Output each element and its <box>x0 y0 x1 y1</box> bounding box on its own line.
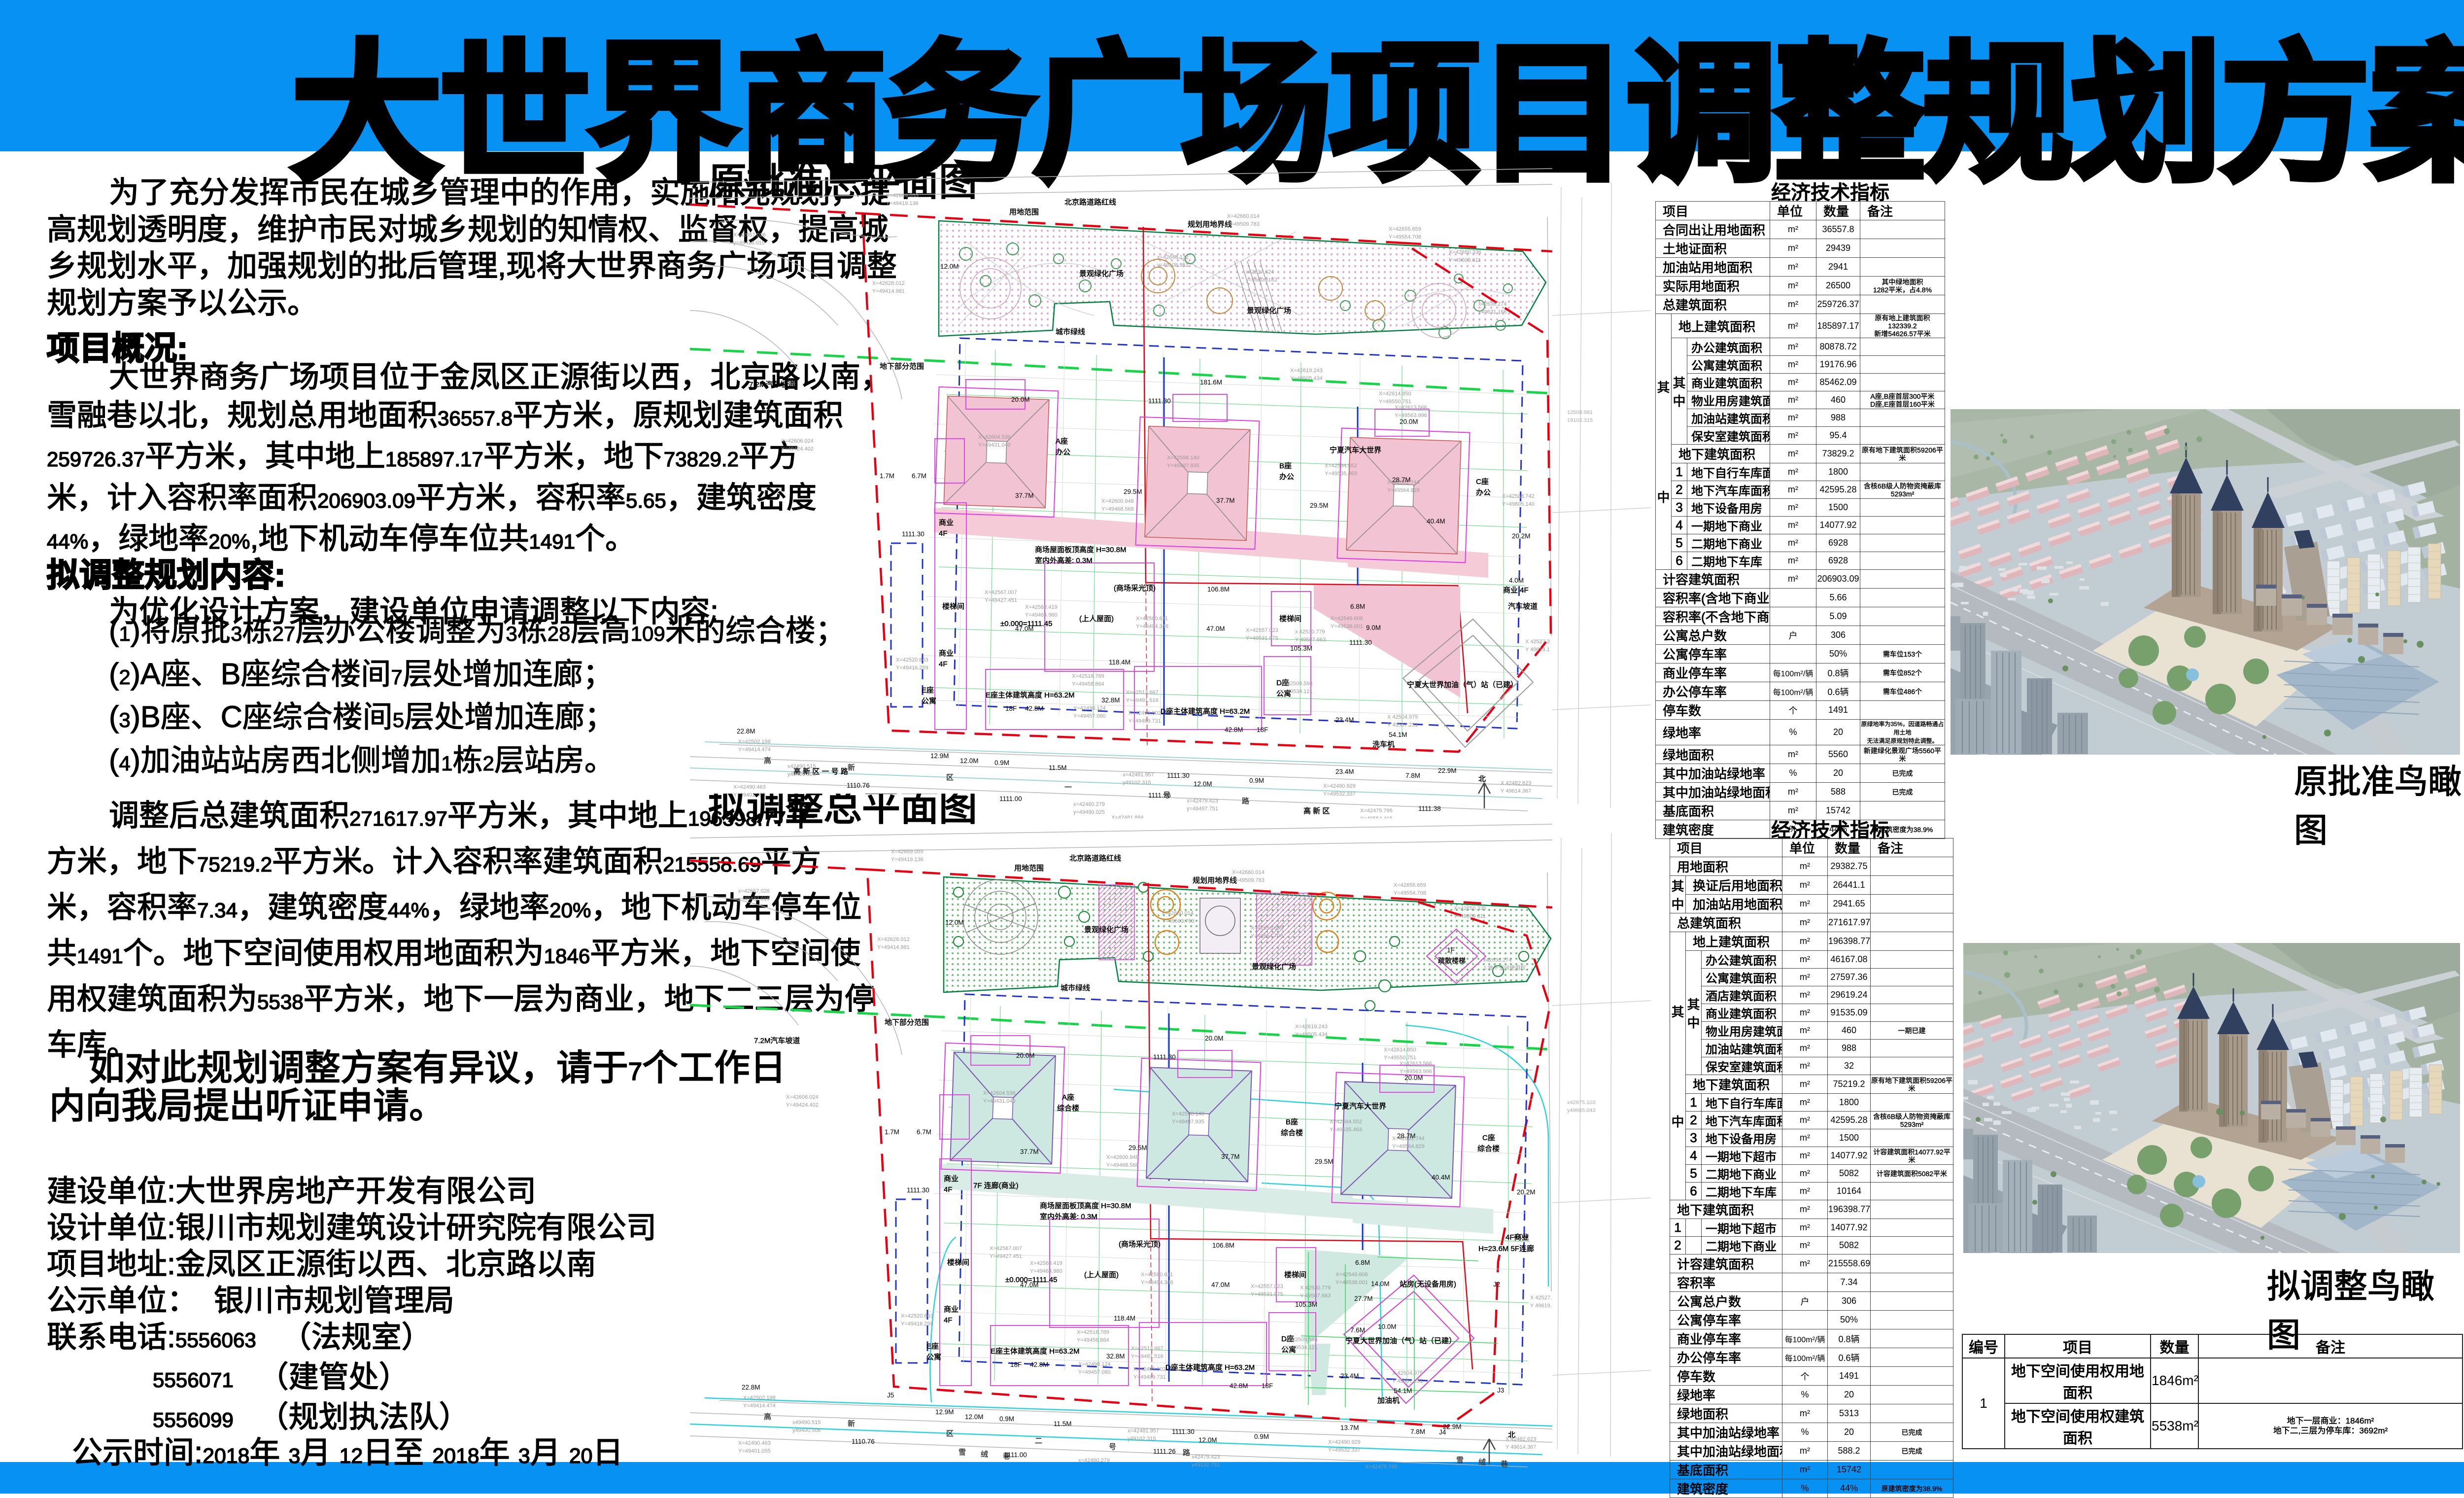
svg-text:X=42613.566: X=42613.566 <box>1395 405 1427 411</box>
svg-text:Y=49554.708: Y=49554.708 <box>1251 933 1283 939</box>
svg-text:路: 路 <box>1183 1449 1190 1457</box>
svg-text:118.4M: 118.4M <box>1114 1315 1135 1322</box>
svg-text:X=42490.929: X=42490.929 <box>1328 1439 1361 1445</box>
svg-text:20.0M: 20.0M <box>1205 1035 1224 1042</box>
svg-text:X=42490.929: X=42490.929 <box>1323 783 1356 789</box>
svg-text:Y=49414.981: Y=49414.981 <box>877 944 910 950</box>
svg-text:宁夏大世界加油（气）站（已建）: 宁夏大世界加油（气）站（已建） <box>1407 681 1518 689</box>
svg-text:景观绿化广场: 景观绿化广场 <box>1084 926 1129 934</box>
svg-text:18F: 18F <box>1010 1361 1022 1368</box>
svg-text:Y 49587.663: Y 49587.663 <box>1295 637 1326 643</box>
svg-text:X=42560.611: X=42560.611 <box>1141 1272 1173 1278</box>
svg-text:号: 号 <box>1109 1443 1116 1451</box>
svg-text:0.9M: 0.9M <box>994 759 1009 766</box>
svg-text:办公: 办公 <box>1056 448 1070 456</box>
svg-text:汽车坡道: 汽车坡道 <box>1508 602 1538 611</box>
svg-text:X=42498.124: X=42498.124 <box>1073 705 1106 711</box>
svg-text:北京路道路红线: 北京路道路红线 <box>1064 198 1116 207</box>
svg-text:x=42657.026: x=42657.026 <box>738 888 770 894</box>
svg-text:巷: 巷 <box>1003 1452 1010 1461</box>
svg-text:X=42513.667: X=42513.667 <box>1126 690 1159 696</box>
svg-text:1.地下空间使用权: 1.地下空间使用权 <box>1483 964 1526 971</box>
svg-text:y49631.166: y49631.166 <box>1478 309 1507 315</box>
svg-text:47.0M: 47.0M <box>1020 1281 1039 1289</box>
svg-text:42.8M: 42.8M <box>1025 705 1044 712</box>
svg-text:Y=49505.434: Y=49505.434 <box>1295 1032 1328 1038</box>
svg-text:4.0M: 4.0M <box>1514 1233 1529 1240</box>
svg-text:18F: 18F <box>1257 726 1268 733</box>
svg-text:室内外高差: 0.3M: 室内外高差: 0.3M <box>1040 1213 1097 1221</box>
svg-text:6.7M: 6.7M <box>912 472 926 480</box>
svg-text:x42617.624: x42617.624 <box>1246 269 1274 275</box>
svg-text:X=42513.667: X=42513.667 <box>1131 1346 1164 1352</box>
svg-text:Y=49538.001: Y=49538.001 <box>1335 1280 1368 1286</box>
svg-text:Y=49550.751: Y=49550.751 <box>1379 399 1411 405</box>
svg-text:105.3M: 105.3M <box>1295 1301 1317 1308</box>
svg-text:y49665.043: y49665.043 <box>1567 1108 1596 1114</box>
svg-text:y49102.315: y49102.315 <box>1128 1436 1156 1442</box>
svg-text:X=42549.606: X=42549.606 <box>1335 1272 1368 1278</box>
svg-text:y49192.751: y49192.751 <box>1192 1462 1220 1468</box>
svg-text:Y=49457.080: Y=49457.080 <box>1078 1369 1111 1375</box>
svg-text:22.9M: 22.9M <box>1438 767 1457 774</box>
svg-text:6.8M: 6.8M <box>1350 603 1365 610</box>
svg-text:加油机: 加油机 <box>1377 1396 1400 1405</box>
svg-text:H=23.6M 5F连廊: H=23.6M 5F连廊 <box>1478 1245 1534 1253</box>
svg-text:商场屋面板顶高度 H=30.8M: 商场屋面板顶高度 H=30.8M <box>1035 545 1126 554</box>
svg-text:Y=49431.040: Y=49431.040 <box>978 442 1011 448</box>
svg-text:X=42655.659: X=42655.659 <box>1251 925 1283 931</box>
svg-text:Y=49509.783: Y=49509.783 <box>1232 877 1265 883</box>
svg-text:Y=49468.568: Y=49468.568 <box>1106 1162 1139 1168</box>
svg-text:(上人屋面): (上人屋面) <box>1084 1271 1119 1279</box>
svg-text:0.9M: 0.9M <box>1254 1433 1269 1440</box>
svg-text:X=42600.948: X=42600.948 <box>1101 498 1134 504</box>
svg-text:宁夏大世界加油（气）站（已建）: 宁夏大世界加油（气）站（已建） <box>1345 1337 1456 1345</box>
svg-text:X=42604.536: X=42604.536 <box>978 434 1011 440</box>
svg-text:新: 新 <box>848 1420 855 1428</box>
svg-text:Y=49414.981: Y=49414.981 <box>872 288 905 294</box>
svg-text:54.1M: 54.1M <box>1394 1387 1412 1394</box>
svg-text:X 42527.2: X 42527.2 <box>1530 1295 1552 1301</box>
svg-text:用地范围: 用地范围 <box>1009 208 1039 216</box>
svg-text:y49400.506: y49400.506 <box>792 1428 821 1433</box>
svg-text:Y=49534.121: Y=49534.121 <box>1280 689 1313 695</box>
svg-text:新: 新 <box>848 764 855 772</box>
svg-text:37.7M: 37.7M <box>1216 497 1235 504</box>
svg-text:19102.315: 19102.315 <box>1567 418 1593 423</box>
svg-text:7.8M: 7.8M <box>1405 772 1420 779</box>
svg-text:13.7M: 13.7M <box>1340 1424 1359 1431</box>
svg-text:Y=49419.136: Y=49419.136 <box>886 201 919 207</box>
svg-text:X=42650.336: X=42650.336 <box>1454 906 1486 911</box>
svg-text:Y=49509.783: Y=49509.783 <box>1227 221 1260 227</box>
svg-text:Y=49554.708: Y=49554.708 <box>1394 890 1426 896</box>
svg-text:1111.30: 1111.30 <box>1148 397 1171 405</box>
svg-text:楼梯间: 楼梯间 <box>1279 615 1301 623</box>
svg-text:X=42509.594: X=42509.594 <box>1280 681 1313 687</box>
svg-text:X=42600.948: X=42600.948 <box>1106 1154 1139 1160</box>
svg-text:办公: 办公 <box>1476 488 1491 497</box>
svg-text:Y 49619.1: Y 49619.1 <box>1525 647 1550 653</box>
svg-text:X 42482.623: X 42482.623 <box>1501 780 1531 786</box>
svg-text:Y=49554.708: Y=49554.708 <box>1389 234 1421 240</box>
svg-text:区: 区 <box>946 1429 954 1438</box>
svg-text:区: 区 <box>946 773 954 782</box>
svg-text:X=42655.659: X=42655.659 <box>1389 226 1421 232</box>
svg-text:20.2M: 20.2M <box>1512 532 1531 540</box>
svg-text:Y=49532.337: Y=49532.337 <box>1328 1447 1361 1453</box>
svg-text:9.0M: 9.0M <box>1366 624 1381 631</box>
svg-text:拟调整总平面图: 拟调整总平面图 <box>708 794 977 829</box>
svg-text:X 42504.975: X 42504.975 <box>1392 1370 1423 1376</box>
svg-text:楼梯间: 楼梯间 <box>942 602 964 611</box>
svg-text:C座: C座 <box>1476 478 1489 486</box>
svg-text:综合楼: 综合楼 <box>1477 1145 1500 1153</box>
svg-text:14.0M: 14.0M <box>1371 1280 1390 1288</box>
svg-text:高: 高 <box>764 1413 771 1421</box>
svg-text:18F: 18F <box>1262 1382 1273 1390</box>
svg-text:一: 一 <box>1064 783 1072 792</box>
svg-text:1.7M: 1.7M <box>880 472 894 480</box>
svg-text:23.4M: 23.4M <box>1340 1372 1359 1380</box>
svg-text:X=42657.026: X=42657.026 <box>733 232 766 238</box>
svg-text:X=42567.007: X=42567.007 <box>985 590 1017 595</box>
svg-text:商业: 商业 <box>939 649 954 658</box>
svg-text:20.2M: 20.2M <box>1517 1188 1536 1196</box>
svg-text:综合楼: 综合楼 <box>1057 1104 1079 1113</box>
svg-text:洗车机: 洗车机 <box>1372 740 1395 749</box>
svg-text:1111.30: 1111.30 <box>1349 639 1372 646</box>
svg-text:Y=49531.875: Y=49531.875 <box>1251 1291 1283 1297</box>
svg-text:y=5560m162: y=5560m162 <box>1246 277 1277 283</box>
svg-text:42.8M: 42.8M <box>1230 1382 1248 1390</box>
svg-text:22.9M: 22.9M <box>1443 1423 1462 1430</box>
svg-text:楼梯间: 楼梯间 <box>1284 1271 1306 1279</box>
svg-text:X=42490.463: X=42490.463 <box>738 1440 771 1446</box>
svg-text:E座主体建筑高度 H=63.2M: E座主体建筑高度 H=63.2M <box>991 1347 1079 1356</box>
svg-text:X=42557.023: X=42557.023 <box>1246 627 1278 633</box>
svg-text:Y=49464.980: Y=49464.980 <box>1030 1268 1062 1274</box>
svg-text:Y=49494.346: Y=49494.346 <box>1136 624 1168 629</box>
svg-text:E座主体建筑高度 H=63.2M: E座主体建筑高度 H=63.2M <box>986 691 1074 699</box>
svg-text:(商场采光顶): (商场采光顶) <box>1114 584 1156 592</box>
svg-text:X=42619.243: X=42619.243 <box>1295 1024 1328 1030</box>
svg-text:Y=49414.474: Y=49414.474 <box>738 747 771 753</box>
svg-text:1111.30: 1111.30 <box>902 530 924 538</box>
svg-text:绒: 绒 <box>981 1450 988 1459</box>
svg-text:0.9M: 0.9M <box>1249 777 1264 784</box>
svg-text:y=49418.019: y=49418.019 <box>733 240 765 246</box>
svg-text:景观绿化广场: 景观绿化广场 <box>1247 307 1291 315</box>
svg-text:12.9M: 12.9M <box>935 1408 954 1416</box>
svg-text:X=42557.023: X=42557.023 <box>1251 1284 1283 1289</box>
svg-text:规划用地界线: 规划用地界线 <box>1188 220 1232 229</box>
svg-text:Y=49489.731: Y=49489.731 <box>1133 1374 1166 1380</box>
svg-text:47.0M: 47.0M <box>1206 625 1225 632</box>
svg-text:Y=49468.568: Y=49468.568 <box>1101 506 1134 512</box>
svg-text:X=42563.419: X=42563.419 <box>1030 1260 1062 1266</box>
svg-text:巷: 巷 <box>1501 1460 1508 1468</box>
svg-text:雪: 雪 <box>958 1448 966 1457</box>
svg-text:景观绿化广场: 景观绿化广场 <box>1252 963 1296 971</box>
svg-text:y=49508.951: y=49508.951 <box>1157 262 1189 268</box>
svg-text:规划用地界线: 规划用地界线 <box>1193 876 1237 885</box>
svg-text:楼梯间: 楼梯间 <box>947 1258 969 1267</box>
svg-text:(商场采光顶): (商场采光顶) <box>1119 1240 1161 1249</box>
svg-text:Y=49491.516: Y=49491.516 <box>1131 1354 1164 1359</box>
svg-text:x 42530.779: x 42530.779 <box>1295 629 1325 635</box>
svg-text:4F: 4F <box>944 1316 953 1324</box>
svg-text:x=42480.279: x=42480.279 <box>1078 1458 1110 1463</box>
svg-text:X=42660.014: X=42660.014 <box>1232 870 1265 875</box>
svg-text:Y=49550.751: Y=49550.751 <box>1384 1055 1416 1061</box>
svg-text:12.0M: 12.0M <box>960 757 979 765</box>
svg-text:12.0M: 12.0M <box>1194 780 1212 788</box>
svg-text:Y=49457.080: Y=49457.080 <box>1073 713 1106 719</box>
svg-text:X=42475.795: X=42475.795 <box>1365 1464 1398 1469</box>
svg-text:Y=49427.451: Y=49427.451 <box>985 597 1017 603</box>
svg-text:12.0M: 12.0M <box>940 263 959 270</box>
svg-text:40.4M: 40.4M <box>1427 518 1445 525</box>
svg-text:12.0M: 12.0M <box>945 919 964 926</box>
svg-text:Y 49614.367: Y 49614.367 <box>1506 1444 1536 1450</box>
svg-text:北: 北 <box>1478 775 1486 783</box>
svg-text:X=42520.863: X=42520.863 <box>901 1313 933 1319</box>
svg-text:X=42495.002: X=42495.002 <box>1133 1366 1166 1372</box>
svg-text:Y=49424.402: Y=49424.402 <box>781 446 814 452</box>
svg-text:地下部分范围: 地下部分范围 <box>885 1018 929 1027</box>
svg-text:Y=49491.516: Y=49491.516 <box>1126 697 1159 703</box>
svg-text:1.7M: 1.7M <box>885 1128 899 1136</box>
svg-text:公寓: 公寓 <box>922 697 936 705</box>
svg-text:Y=49564.829: Y=49564.829 <box>1387 488 1420 493</box>
svg-text:1F: 1F <box>1447 946 1455 954</box>
svg-text:x=42481.957: x=42481.957 <box>1123 772 1154 778</box>
svg-text:Y 49587.663: Y 49587.663 <box>1300 1293 1331 1299</box>
svg-text:Y=49419.136: Y=49419.136 <box>891 857 924 863</box>
svg-text:X=42660.014: X=42660.014 <box>1227 213 1260 219</box>
svg-text:X=42669.055: X=42669.055 <box>886 193 919 199</box>
svg-text:Y 49557.231: Y 49557.231 <box>1387 722 1418 728</box>
svg-text:Y=49535.463: Y=49535.463 <box>1330 1127 1362 1133</box>
svg-text:X=42619.243: X=42619.243 <box>1290 368 1323 374</box>
svg-text:X=42628.012: X=42628.012 <box>877 937 910 942</box>
svg-text:地下部分范围: 地下部分范围 <box>880 362 924 371</box>
svg-text:X=42669.055: X=42669.055 <box>891 849 924 855</box>
svg-text:7.2M汽车坡道: 7.2M汽车坡道 <box>754 1037 800 1045</box>
svg-text:29.5M: 29.5M <box>1129 1144 1147 1151</box>
svg-text:X=42614.850: X=42614.850 <box>1384 1047 1416 1053</box>
svg-text:Y 49557.231: Y 49557.231 <box>1392 1378 1423 1384</box>
svg-text:X=42567.007: X=42567.007 <box>990 1246 1022 1252</box>
svg-text:11.5M: 11.5M <box>1049 764 1067 771</box>
svg-text:绒: 绒 <box>1478 1458 1486 1466</box>
svg-text:y49102.315: y49102.315 <box>1123 780 1151 786</box>
svg-text:40.4M: 40.4M <box>1432 1174 1450 1181</box>
svg-text:Y=49609.611: Y=49609.611 <box>1449 257 1481 263</box>
svg-text:7F 连廊(商业): 7F 连廊(商业) <box>973 1182 1019 1190</box>
svg-text:y=49437.019: y=49437.019 <box>738 896 770 902</box>
svg-text:X=42495.002: X=42495.002 <box>1129 710 1161 716</box>
svg-text:118.4M: 118.4M <box>1109 659 1130 666</box>
svg-text:x42675.103: x42675.103 <box>1567 1100 1596 1106</box>
svg-text:7.2M汽车坡道: 7.2M汽车坡道 <box>749 381 795 389</box>
svg-text:商业: 商业 <box>944 1175 958 1183</box>
svg-text:x=42648.132: x=42648.132 <box>1157 254 1189 260</box>
svg-text:D座主体建筑高度 H=63.2M: D座主体建筑高度 H=63.2M <box>1165 1363 1255 1372</box>
svg-text:E座: E座 <box>926 1342 939 1351</box>
svg-text:A座: A座 <box>1062 1093 1074 1102</box>
svg-text:x42479.423: x42479.423 <box>1192 1454 1220 1460</box>
svg-text:X 42530.779: X 42530.779 <box>1300 1285 1331 1291</box>
svg-text:X=42509.594: X=42509.594 <box>1285 1337 1318 1343</box>
svg-text:X=42598.140: X=42598.140 <box>1167 455 1199 461</box>
svg-text:181.6M: 181.6M <box>1200 379 1222 386</box>
svg-text:X=42628.012: X=42628.012 <box>872 280 905 286</box>
svg-text:y49400.506: y49400.506 <box>787 771 816 777</box>
svg-text:城市绿线: 城市绿线 <box>1061 984 1090 992</box>
svg-text:站房(无设备用房): 站房(无设备用房) <box>1400 1280 1456 1289</box>
svg-text:4F: 4F <box>944 1185 953 1194</box>
svg-text:54.1M: 54.1M <box>1389 731 1407 738</box>
svg-text:J2: J2 <box>1493 1281 1500 1288</box>
svg-text:商业: 商业 <box>939 519 954 527</box>
svg-text:X=42563.419: X=42563.419 <box>1025 604 1058 610</box>
svg-text:Y=49535.463: Y=49535.463 <box>1325 471 1357 477</box>
svg-text:Y=49458.864: Y=49458.864 <box>1077 1337 1109 1343</box>
svg-text:Y=49464.980: Y=49464.980 <box>1025 612 1058 618</box>
svg-text:6.8M: 6.8M <box>1355 1259 1370 1266</box>
svg-text:Y=49505.434: Y=49505.434 <box>1290 376 1323 382</box>
svg-text:Y=49424.402: Y=49424.402 <box>786 1102 819 1108</box>
svg-text:X=42594.552: X=42594.552 <box>1325 463 1357 469</box>
svg-text:29.5M: 29.5M <box>1310 502 1329 509</box>
svg-text:X=42490.463: X=42490.463 <box>733 784 766 790</box>
svg-text:X=42604.536: X=42604.536 <box>983 1090 1016 1096</box>
svg-text:城市绿线: 城市绿线 <box>1056 328 1085 336</box>
svg-text:X 42482.623: X 42482.623 <box>1506 1436 1536 1442</box>
svg-text:20.0M: 20.0M <box>1400 418 1418 425</box>
svg-text:4F: 4F <box>939 529 948 538</box>
svg-text:Y=49497.935: Y=49497.935 <box>1172 1119 1204 1125</box>
svg-text:10.0M: 10.0M <box>1378 1323 1397 1330</box>
svg-text:4.0M: 4.0M <box>1509 577 1524 584</box>
svg-text:11.5M: 11.5M <box>1054 1420 1072 1428</box>
svg-text:X=42502.198: X=42502.198 <box>738 739 771 745</box>
svg-text:Y=49497.935: Y=49497.935 <box>1167 463 1199 469</box>
svg-text:42.8M: 42.8M <box>1030 1361 1049 1368</box>
svg-text:宁夏汽车大世界: 宁夏汽车大世界 <box>1335 1102 1386 1111</box>
svg-text:X=42588.742: X=42588.742 <box>1502 493 1535 499</box>
svg-text:二: 二 <box>1035 1437 1042 1445</box>
svg-text:x=42481.957: x=42481.957 <box>1128 1428 1159 1434</box>
svg-text:X=42613.566: X=42613.566 <box>1400 1061 1432 1067</box>
svg-text:景观绿化广场: 景观绿化广场 <box>1079 270 1124 278</box>
svg-text:X=42516.789: X=42516.789 <box>1077 1329 1109 1335</box>
svg-text:1110.76: 1110.76 <box>852 1438 875 1445</box>
svg-text:x=42660.014: x=42660.014 <box>1162 910 1194 916</box>
svg-text:Y=49531.875: Y=49531.875 <box>1246 635 1278 641</box>
svg-text:X=42606.024: X=42606.024 <box>781 438 814 444</box>
svg-text:雪: 雪 <box>1456 1456 1464 1464</box>
svg-text:X=42502.198: X=42502.198 <box>743 1395 776 1401</box>
svg-text:1111.26: 1111.26 <box>1153 1448 1176 1455</box>
svg-text:42.8M: 42.8M <box>1225 726 1243 733</box>
svg-text:23.4M: 23.4M <box>1335 768 1354 775</box>
svg-text:X=42498.124: X=42498.124 <box>1078 1361 1111 1367</box>
svg-text:29.5M: 29.5M <box>1124 488 1142 495</box>
svg-text:29.5M: 29.5M <box>1315 1158 1334 1165</box>
svg-text:22.8M: 22.8M <box>742 1384 760 1391</box>
svg-text:X=42594.552: X=42594.552 <box>1330 1119 1362 1125</box>
svg-text:1111.30: 1111.30 <box>1172 1428 1195 1435</box>
svg-text:X=42560.611: X=42560.611 <box>1136 616 1168 622</box>
svg-text:28.7M: 28.7M <box>1397 1132 1416 1140</box>
svg-text:Y=49538.001: Y=49538.001 <box>1331 624 1363 629</box>
svg-text:Y=49431.040: Y=49431.040 <box>983 1098 1016 1104</box>
svg-text:B座: B座 <box>1286 1118 1298 1126</box>
svg-text:12.9M: 12.9M <box>930 752 949 760</box>
svg-text:Y=49503.783: Y=49503.783 <box>1162 918 1195 924</box>
svg-text:47.0M: 47.0M <box>1015 625 1034 632</box>
svg-text:C座: C座 <box>1482 1134 1495 1142</box>
svg-text:37.7M: 37.7M <box>1221 1153 1240 1160</box>
svg-text:1111.30: 1111.30 <box>1153 1053 1176 1061</box>
svg-text:x49490.515: x49490.515 <box>792 1420 821 1426</box>
svg-text:20.0M: 20.0M <box>1404 1074 1423 1081</box>
svg-text:7.6M: 7.6M <box>1350 1326 1365 1334</box>
svg-text:22.8M: 22.8M <box>737 728 755 735</box>
svg-text:23.4M: 23.4M <box>1335 716 1354 724</box>
svg-text:商业 4F: 商业 4F <box>1503 586 1529 594</box>
svg-text:0.9M: 0.9M <box>999 1415 1014 1423</box>
svg-text:办公: 办公 <box>1279 473 1294 481</box>
svg-text:6.7M: 6.7M <box>917 1128 931 1136</box>
svg-text:X 42527.2: X 42527.2 <box>1525 639 1550 645</box>
svg-text:X=42655.659: X=42655.659 <box>1394 882 1426 888</box>
svg-text:X=42606.024: X=42606.024 <box>786 1094 819 1100</box>
svg-text:J3: J3 <box>1497 1387 1504 1394</box>
svg-text:12.0M: 12.0M <box>965 1413 984 1421</box>
svg-text:Y=49416.259: Y=49416.259 <box>901 1321 933 1327</box>
svg-text:12508.981: 12508.981 <box>1567 410 1593 416</box>
svg-text:32.8M: 32.8M <box>1101 697 1120 704</box>
svg-text:12.0M: 12.0M <box>1198 1436 1217 1444</box>
svg-text:7.8M: 7.8M <box>1410 1428 1425 1435</box>
svg-text:Y=49494.346: Y=49494.346 <box>1141 1280 1173 1286</box>
svg-text:高: 高 <box>764 757 771 765</box>
svg-text:32.8M: 32.8M <box>1106 1353 1125 1360</box>
svg-text:x42636.274: x42636.274 <box>1483 957 1512 963</box>
svg-text:105.3M: 105.3M <box>1290 645 1312 652</box>
svg-text:20.0M: 20.0M <box>1016 1052 1035 1059</box>
svg-text:疏散楼梯: 疏散楼梯 <box>1438 957 1466 965</box>
svg-text:X=42516.789: X=42516.789 <box>1072 673 1104 679</box>
svg-text:4F: 4F <box>939 660 948 668</box>
svg-text:106.8M: 106.8M <box>1212 1242 1234 1249</box>
svg-text:Y=49427.451: Y=49427.451 <box>990 1254 1022 1259</box>
svg-text:37.7M: 37.7M <box>1015 492 1034 499</box>
svg-text:Y=49489.731: Y=49489.731 <box>1129 718 1161 724</box>
svg-text:Y=49458.864: Y=49458.864 <box>1072 681 1104 687</box>
svg-text:Y=49564.829: Y=49564.829 <box>1392 1144 1425 1150</box>
svg-text:1111.30: 1111.30 <box>907 1186 929 1194</box>
svg-text:Y=49414.474: Y=49414.474 <box>743 1403 776 1409</box>
svg-text:x42490.515: x42490.515 <box>787 764 816 769</box>
svg-text:室内外高差: 0.3M: 室内外高差: 0.3M <box>1035 557 1093 565</box>
svg-text:1110.76: 1110.76 <box>847 782 870 789</box>
